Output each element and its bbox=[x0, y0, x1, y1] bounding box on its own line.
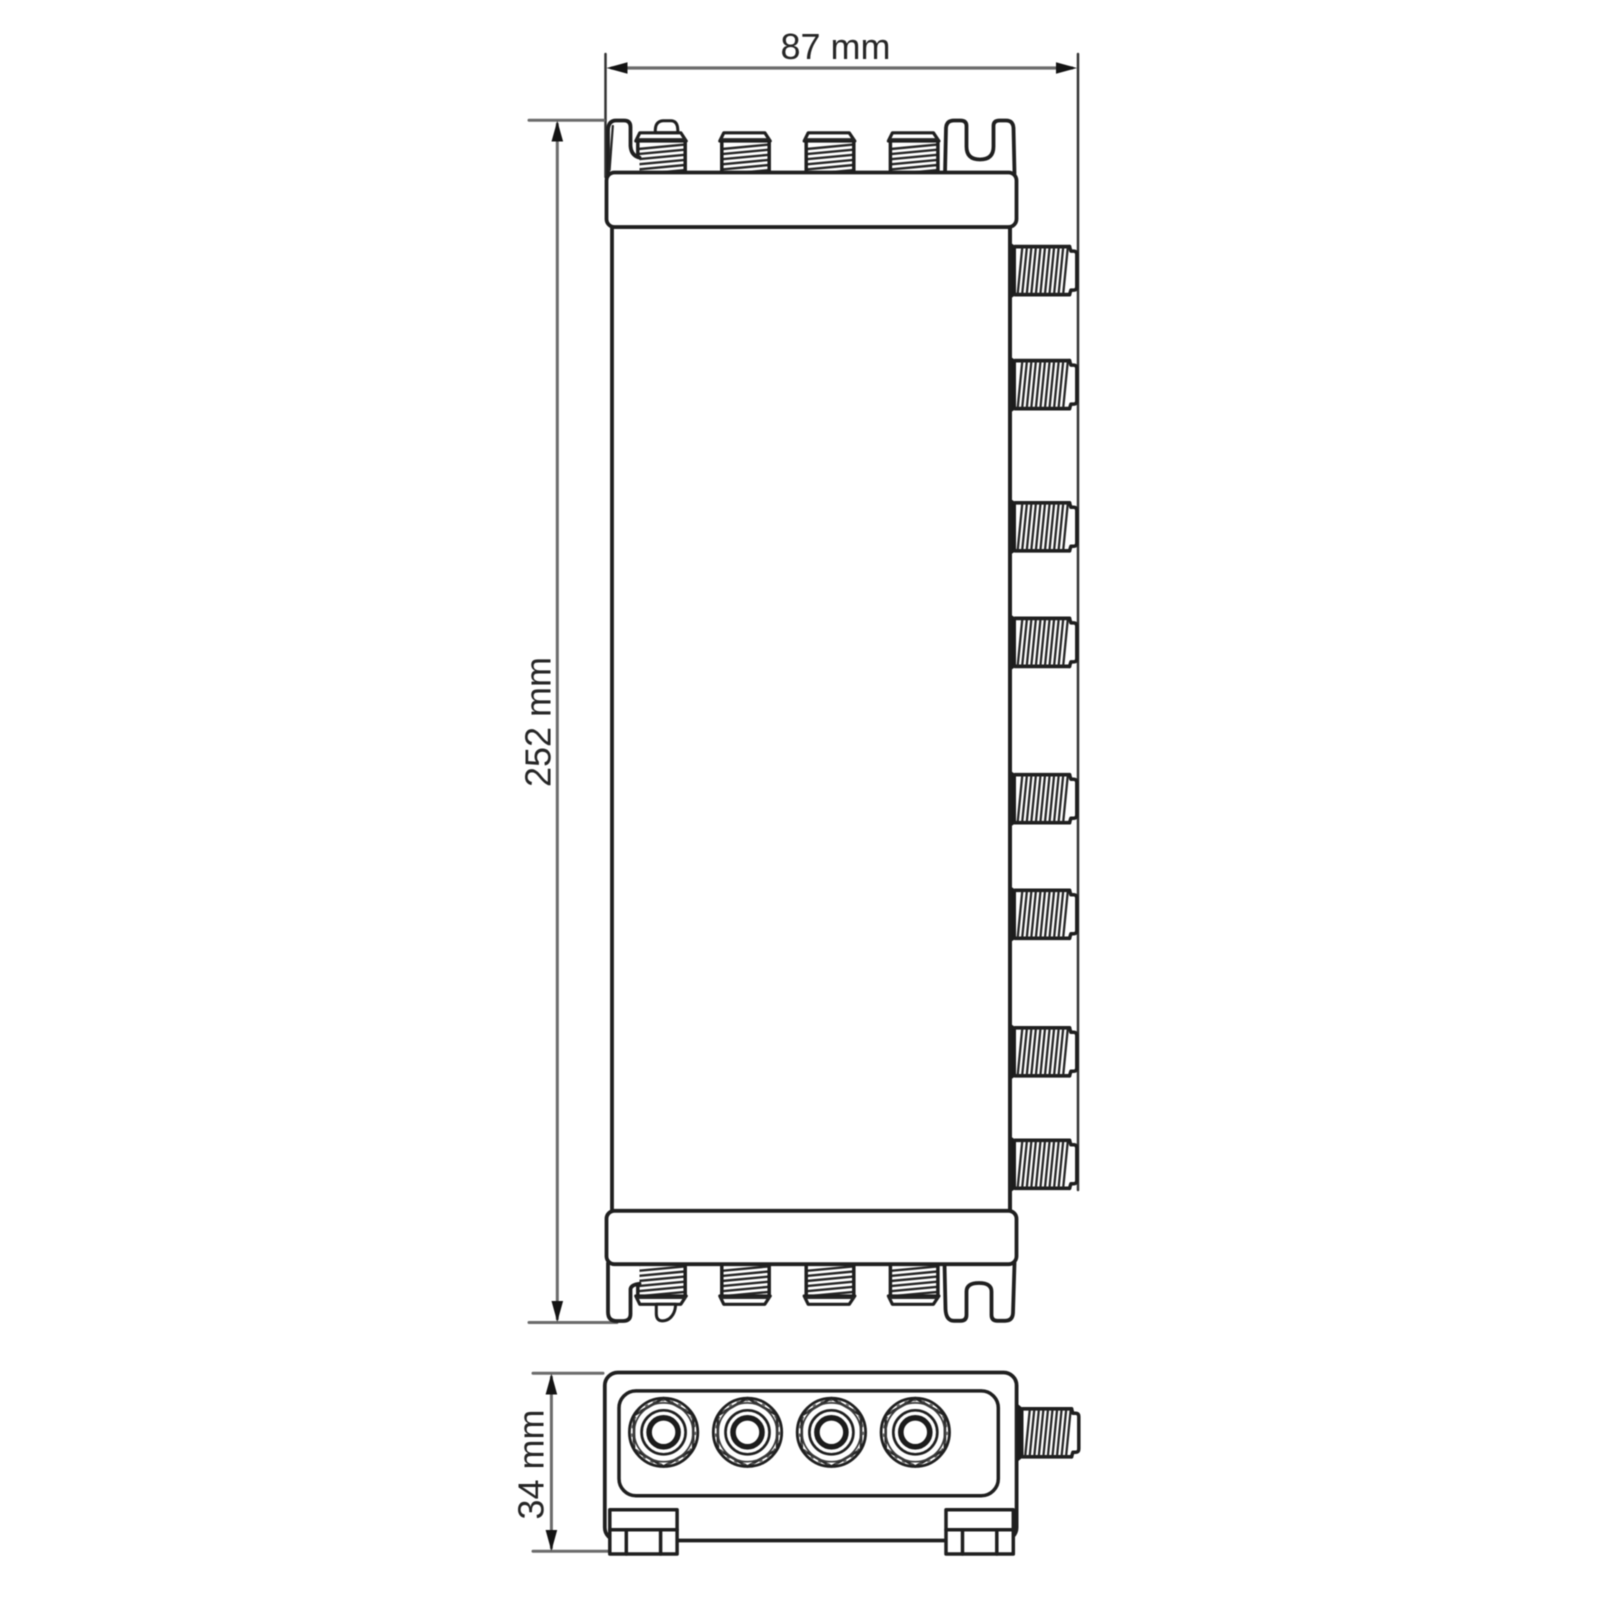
svg-text:87 mm: 87 mm bbox=[780, 26, 890, 67]
svg-text:252 mm: 252 mm bbox=[518, 657, 559, 787]
svg-text:34 mm: 34 mm bbox=[510, 1409, 551, 1519]
